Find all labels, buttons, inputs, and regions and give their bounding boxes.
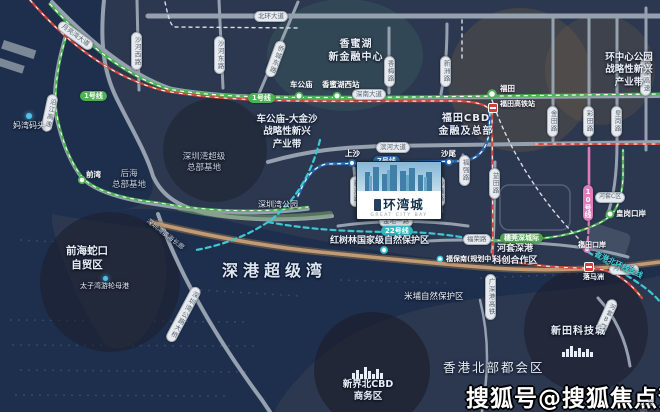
station-label-luomazhou: 落马洲 [583,272,604,282]
metro-label-line10: 10号线 [583,185,593,221]
road-label-beihuan: 北环大道 [254,11,288,22]
station-label-futian-port: 福田口岸 [578,240,606,250]
station-label-huanggang-port: 皇岗口岸 [616,208,646,219]
station-label-shawei: 沙尾 [441,148,456,159]
project-render-image [357,162,441,191]
metro-label-line1-2: 1号线 [248,93,275,103]
project-name: 环湾城 [383,199,424,212]
road-label-yitian: 益田路 [489,168,500,199]
road-label-hsr: 广深港高铁 [485,274,496,320]
area-label-hongshulin: 红树林国家级自然保护区 [330,236,429,248]
station-label-qianwan: 前湾 [86,169,101,180]
area-label-qianhai: 前海蛇口 自贸区 [58,245,116,272]
area-label-houhai: 后海 总部基地 [106,169,152,191]
metro-label-line1: 1号线 [80,91,107,101]
logo-seal [374,199,381,211]
project-name-en: GREAT CITY BAY [357,213,441,218]
project-logo-card: 环湾城 GREAT CITY BAY [356,161,442,220]
road-label-caitian: 彩田路 [583,106,594,137]
road-label-fuqiang: 福强路 [459,155,470,186]
port-dot-mawan [26,113,32,119]
area-label-xinjiebei: 新界北CBD 商务区 [339,379,397,404]
station-label-xiangmihuxi: 香蜜湖西站 [322,79,360,90]
area-label-hk-metropolis: 香港北部都会区 [443,360,545,376]
area-label-mawan: 妈湾码头 [13,121,45,131]
area-label-futian-cbd: 福田CBD 金融及总部 [434,112,498,138]
hsr-station-icon-luomazhou [584,262,594,272]
watermark-text: 搜狐号@搜狐焦点贺州站 [466,379,660,412]
zone-label-hetao-c: 河套C区 [595,192,625,203]
station-label-futian: 福田 [500,83,515,94]
skyline-icon-xinjiebei [352,366,384,379]
road-label-huanggang: 皇岗路 [611,106,622,137]
area-label-mipu: 米埔自然保护区 [404,292,464,303]
station-label-futian-hsr: 福田高铁站 [500,99,535,109]
road-label-binhe: 滨河大道 [376,142,410,153]
area-label-xiangmihu: 香蜜湖 新金融中心 [318,38,394,64]
port-dot-taiziwan [103,276,108,281]
area-label-hetao: 河套深港 科创合作区 [486,244,544,267]
road-label-jintian: 金田路 [547,106,558,137]
road-label-shennan: 深南大道 [352,89,386,100]
area-label-taiziwan: 太子湾游轮母港 [80,282,129,291]
area-label-szw-park: 深圳湾公园 [258,200,298,210]
road-label-shahedong: 沙河东路 [214,36,225,74]
road-label-xinzhou-n: 新洲路 [440,56,451,87]
metro-label-line22: 22号线 [381,226,413,236]
area-label-shengang-bay: 深港超级湾 [222,261,327,282]
schematic-note: 示意图 [640,398,660,412]
project-render-buildings [357,162,441,191]
metro-label-intercity: 穗莞深城际 [500,233,543,243]
location-map: 北环大道 沙河西路 沙河东路 侨城东路 月亮湾大道 沿江高速 深南大道 香梅路 … [0,0,660,412]
area-label-szw-hq: 深圳湾超级 总部基地 [176,152,232,174]
skyline-icon-xintian [562,344,594,357]
station-label-shangsha: 上沙 [345,148,360,159]
station-label-chegongmiao: 车公庙 [290,79,313,90]
road-label-shahexi: 沙河西路 [131,32,142,70]
area-label-chegongmiao-dajinsha: 车公庙-大金沙 战略性新兴 产业带 [246,114,328,151]
area-label-huanzhongxin: 环中心公园 战略性新兴 产业带 [600,52,658,89]
area-label-xintian: 新田科技城 [551,325,606,338]
